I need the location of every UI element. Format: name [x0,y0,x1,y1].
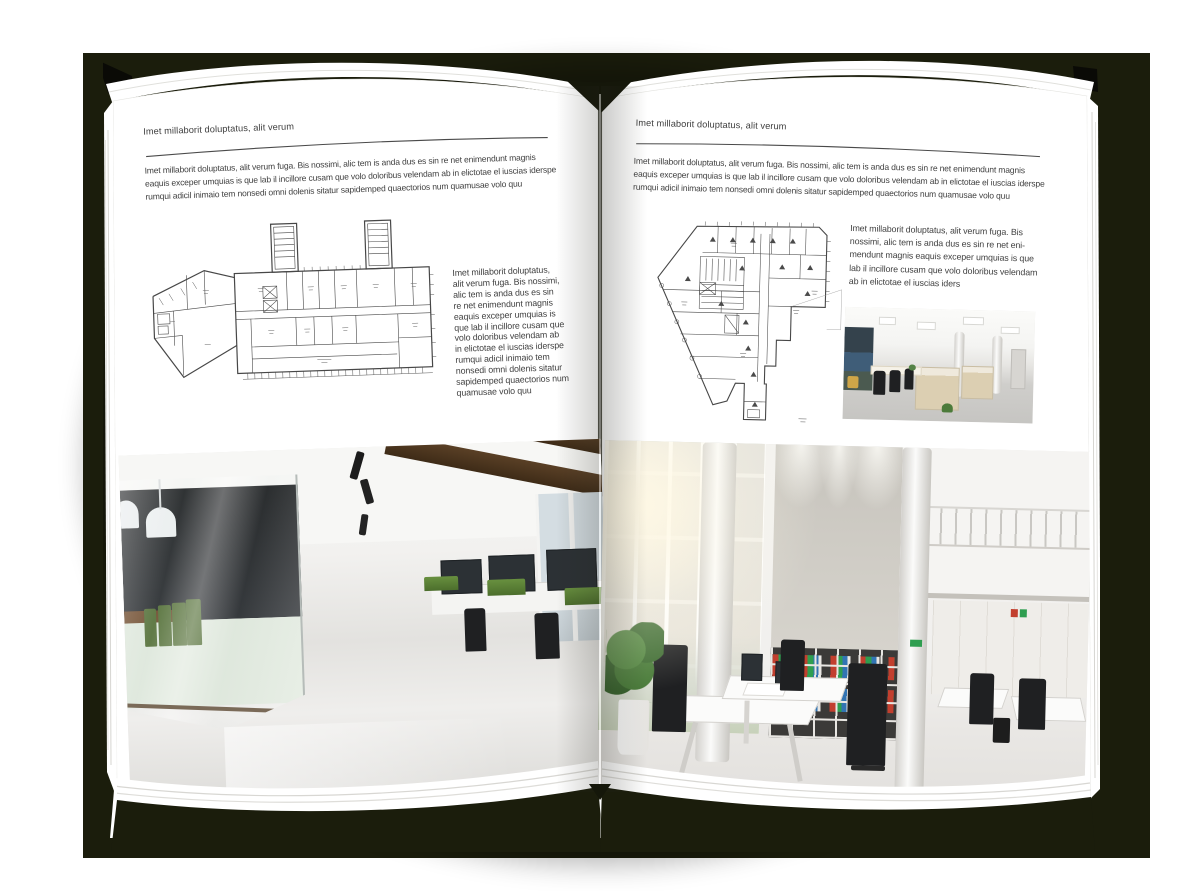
glass-meeting-room [119,474,306,734]
wood-planter [427,588,462,681]
ceiling-light-panel-2 [917,322,936,330]
desk-cabinet [915,367,960,410]
glass-pane [119,474,306,734]
back-wall-door [1010,349,1026,389]
office-chair [873,370,885,395]
plant-2 [908,364,916,370]
yellow-armchair [847,376,859,387]
sun-glow [596,440,1093,814]
office-chair-3 [904,369,914,389]
floor-sheen [224,717,516,804]
left-page: Imet millaborit doluptatus, alit verum I… [97,53,613,810]
right-floor-plan [638,211,848,431]
right-page-photo-white-office [596,440,1093,814]
right-page-photo-small-office [843,307,1036,424]
office-chair [464,608,487,651]
ceiling-light-panel-3 [963,316,984,325]
left-page-side-text: Imet millaborit doluptatus, alit verum f… [452,264,569,399]
left-page-photo-loft-office [119,439,613,808]
right-page: Imet millaborit doluptatus, alit verum I… [593,62,1103,824]
left-floor-plan [142,208,449,410]
right-page-header: Imet millaborit doluptatus, alit verum [636,118,787,132]
office-chair-2 [889,370,901,393]
wood-planter-2 [490,593,530,700]
brochure-mockup-scene: Imet millaborit doluptatus, alit verum I… [0,0,1200,891]
right-page-body-text: Imet millaborit doluptatus, alit verum f… [849,222,1039,293]
office-chair-2 [534,613,560,660]
ceiling-light-panel [879,317,896,325]
left-page-header: Imet millaborit doluptatus, alit verum [143,121,294,136]
plant [942,403,954,412]
desk-monitor-3 [546,548,598,590]
desk-cabinet-2 [961,366,994,400]
ceiling-light-panel-4 [1000,326,1019,334]
